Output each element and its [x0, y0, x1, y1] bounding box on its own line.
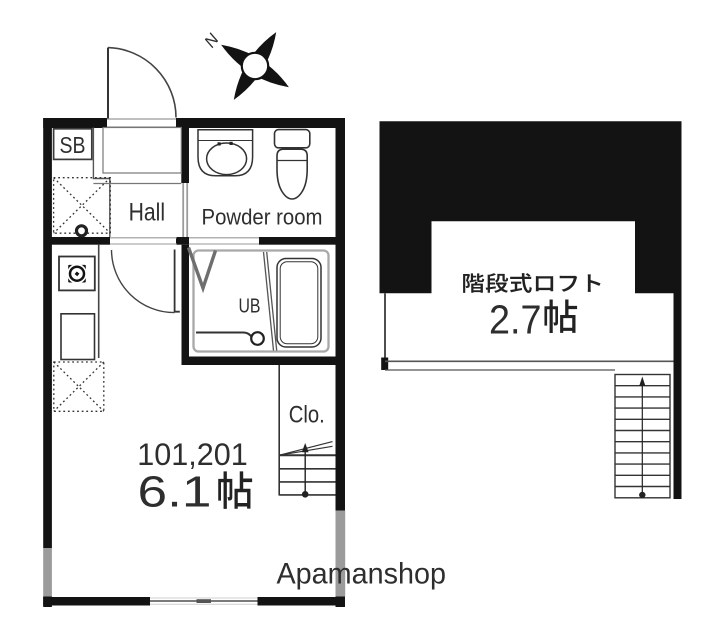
svg-text:Clo.: Clo. — [289, 402, 325, 429]
svg-text:UB: UB — [239, 295, 261, 317]
svg-text:SB: SB — [60, 132, 86, 158]
svg-text:Apamanshop: Apamanshop — [277, 557, 447, 590]
svg-text:6.1: 6.1 — [138, 467, 212, 516]
svg-text:2.7: 2.7 — [489, 297, 542, 343]
svg-text:Powder room: Powder room — [202, 205, 323, 230]
svg-text:Hall: Hall — [129, 199, 166, 226]
